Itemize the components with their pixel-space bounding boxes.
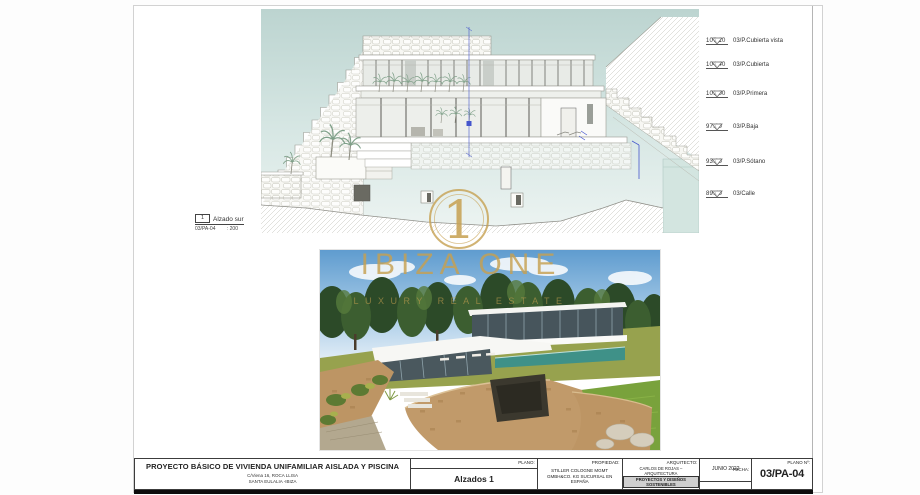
title-block: PROYECTO BÁSICO DE VIVIENDA UNIFAMILIAR … <box>134 458 813 490</box>
view-title: Alzado sur <box>213 216 244 223</box>
house-section <box>349 36 631 189</box>
level-triangle-icon <box>711 123 723 131</box>
plano-name: Alzados 1 <box>411 474 537 484</box>
view-scale: : 200 <box>227 226 238 232</box>
arquitecto-address: Avda. Manoteras nº38. Esc. 4 - 206 <box>623 489 700 490</box>
plano-num-value: 03/PA-04 <box>752 468 812 480</box>
page-background: 107.1003/P.Cubierta vista 104.4003/P.Cub… <box>0 0 920 495</box>
level-label: 03/P.Baja <box>733 124 758 130</box>
drawing-sheet: 107.1003/P.Cubierta vista 104.4003/P.Cub… <box>133 5 823 493</box>
level-marker: 97.0003/P.Baja <box>706 115 758 131</box>
title-block-propiedad-cell: PROPIEDAD: STILLER COLOGNE MGMT GMBH&CO.… <box>538 459 623 489</box>
south-elevation-drawing <box>261 9 699 233</box>
level-marker: 101.0003/P.Primera <box>706 82 767 98</box>
level-label: 03/P.Primera <box>733 91 767 97</box>
project-title: PROYECTO BÁSICO DE VIVIENDA UNIFAMILIAR … <box>135 462 410 471</box>
level-triangle-icon <box>711 37 723 45</box>
level-label: 03/Calle <box>733 191 755 197</box>
level-triangle-icon <box>711 90 723 98</box>
level-marker: 93.0003/P.Sótano <box>706 150 765 166</box>
title-block-plano-num-cell: PLANO Nº: 03/PA-04 <box>752 459 812 489</box>
level-marker: 104.4003/P.Cubierta <box>706 53 769 69</box>
fecha-label: FECHA: <box>733 467 750 472</box>
drawing-frame-right-border <box>812 6 813 458</box>
level-marker: 89.4003/Calle <box>706 182 755 198</box>
level-triangle-icon <box>711 61 723 69</box>
propiedad-name: STILLER COLOGNE MGMT GMBH&CO. KG SUCURSA… <box>538 468 622 485</box>
level-label: 03/P.Cubierta <box>733 62 769 68</box>
level-triangle-icon <box>711 190 723 198</box>
arquitecto-name: CARLOS DE ROJAS – ARQUITECTURA <box>623 466 700 476</box>
villa-render-photo <box>319 249 661 451</box>
plano-num-label: PLANO Nº: <box>787 460 810 465</box>
arquitecto-studio: PROYECTOS Y DISEÑOS SOSTENIBLES <box>623 476 700 488</box>
project-address-line2: SANTA EULALIA -IBIZA <box>135 479 410 485</box>
title-block-project-cell: PROYECTO BÁSICO DE VIVIENDA UNIFAMILIAR … <box>135 459 411 489</box>
level-triangle-icon <box>711 158 723 166</box>
view-code: 03/PA-04 <box>195 226 215 232</box>
propiedad-label: PROPIEDAD: <box>592 460 620 465</box>
title-block-plano-cell: PLANO: Alzados 1 <box>411 459 538 489</box>
level-label: 03/P.Cubierta vista <box>733 38 783 44</box>
arquitecto-label: ARQUITECTO: <box>667 460 698 465</box>
view-label: 1 Alzado sur 03/PA-04 : 200 <box>195 214 244 232</box>
title-block-arquitecto-cell: ARQUITECTO: CARLOS DE ROJAS – ARQUITECTU… <box>623 459 701 489</box>
level-label: 03/P.Sótano <box>733 159 765 165</box>
title-block-fecha-escala-cell: FECHA: JUNIO 2022 ESCALA: 1:200 <box>700 459 752 489</box>
plano-label: PLANO: <box>518 460 535 465</box>
title-block-bottom-bar <box>134 490 813 494</box>
view-number-box: 1 <box>195 214 210 223</box>
level-marker: 107.1003/P.Cubierta vista <box>706 29 783 45</box>
